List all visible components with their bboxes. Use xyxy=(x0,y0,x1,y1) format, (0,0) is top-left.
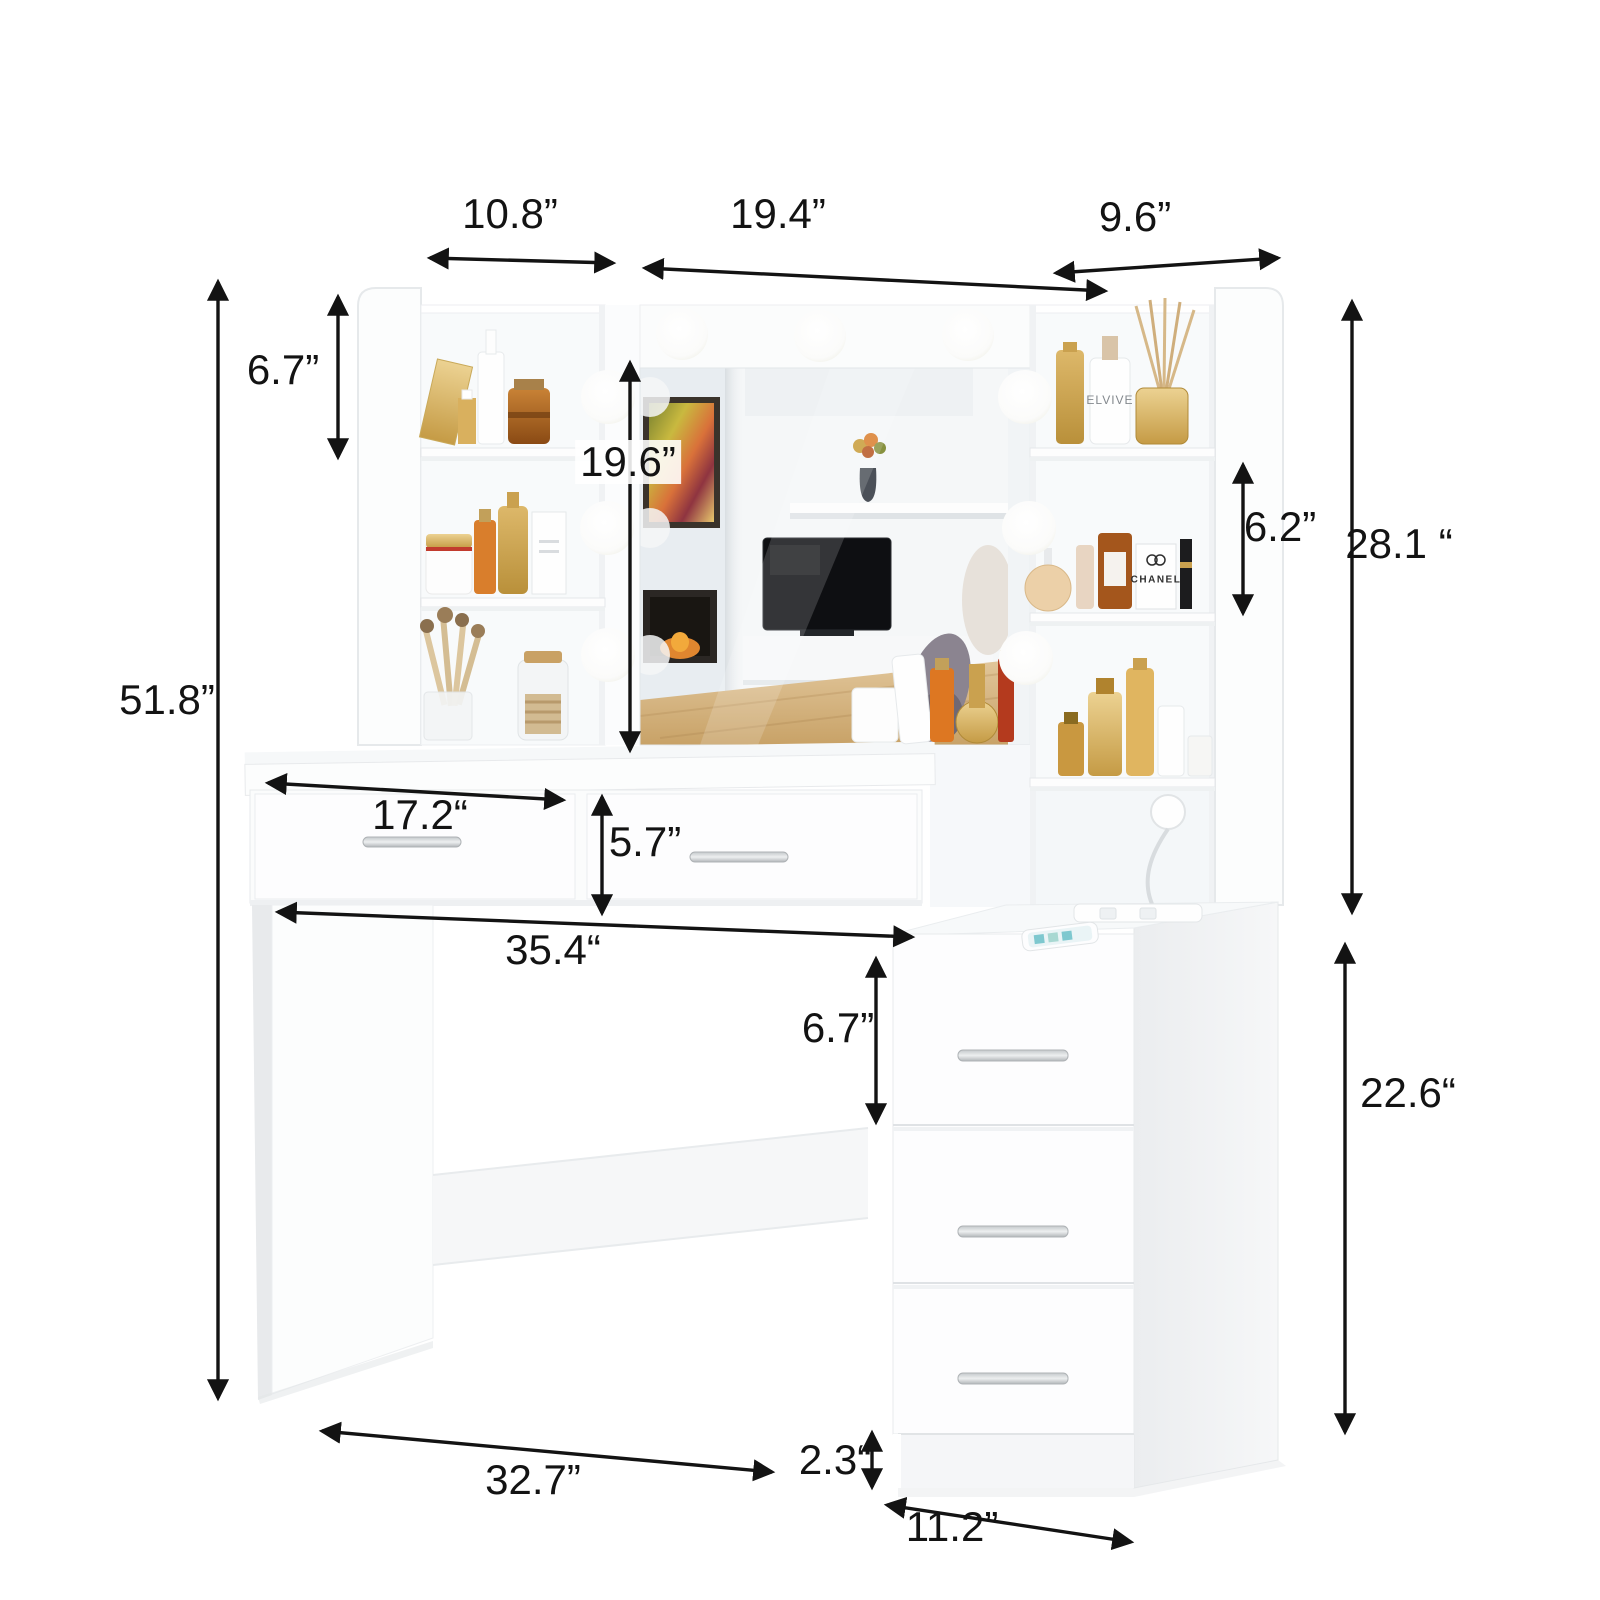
dim-label-cabinet-drawer-height: 6.7” xyxy=(802,1007,874,1049)
dim-label-mirror-width: 19.4” xyxy=(730,193,826,235)
dim-label-left-shelf-spacing: 6.7” xyxy=(247,349,319,391)
elvive-label: ELVIVE xyxy=(1086,393,1133,407)
drawer-handle xyxy=(690,852,788,862)
light-bulb xyxy=(581,370,635,424)
cabinet-side xyxy=(1134,902,1278,1488)
vanity-dimension-diagram: 10.8” 19.4” 9.6” 6.7” 19.6” 6.2” 28.1 “ … xyxy=(0,0,1600,1600)
dim-label-base-height: 2.3“ xyxy=(799,1439,871,1481)
cabinet-handle xyxy=(958,1373,1068,1384)
mascara xyxy=(1180,539,1192,609)
light-bulb xyxy=(656,308,708,360)
dim-label-hutch-right-width: 9.6” xyxy=(1099,196,1171,238)
right-niche xyxy=(1030,787,1215,907)
dim-label-hutch-left-width: 10.8” xyxy=(462,193,558,235)
hutch-left-panel xyxy=(358,288,421,745)
light-bulb xyxy=(998,370,1052,424)
chanel-label: CHANEL xyxy=(1131,575,1182,586)
diagram-artwork xyxy=(0,0,1600,1600)
light-bulb xyxy=(581,628,635,682)
arrow-mirror-width xyxy=(645,268,1105,291)
dim-label-right-shelf-spacing: 6.2” xyxy=(1244,506,1316,548)
dim-label-mirror-height: 19.6” xyxy=(575,440,681,484)
light-bulb xyxy=(794,310,846,362)
light-bulb xyxy=(580,501,634,555)
cabinet-handle xyxy=(958,1050,1068,1061)
left-leg xyxy=(252,905,433,1404)
right-tower-top-board xyxy=(1030,305,1215,313)
center-niche xyxy=(930,745,1030,907)
reflected-armchair xyxy=(962,545,1014,655)
dim-label-desk-drawer-width: 17.2“ xyxy=(372,794,468,836)
arrow-hutch-left-width xyxy=(430,258,613,263)
dim-label-cabinet-width: 11.2” xyxy=(906,1506,999,1548)
arrow-hutch-right-width xyxy=(1056,258,1278,273)
dim-label-cabinet-height: 22.6“ xyxy=(1360,1072,1456,1114)
dim-label-desktop-width: 35.4“ xyxy=(505,929,601,971)
drawer-handle xyxy=(363,837,461,847)
dim-label-hutch-height: 28.1 “ xyxy=(1345,523,1452,565)
light-bulb xyxy=(942,309,994,361)
left-tower-top-board xyxy=(421,305,605,313)
cabinet-handle xyxy=(958,1226,1068,1237)
cable-hole xyxy=(1151,795,1185,829)
support-beam xyxy=(433,1128,868,1265)
light-bulb xyxy=(1002,501,1056,555)
right-cabinet xyxy=(886,902,1286,1497)
hutch-right-panel xyxy=(1215,288,1283,905)
desk-drawers xyxy=(250,790,922,906)
cabinet-base xyxy=(898,1434,1134,1488)
light-bulb xyxy=(999,631,1053,685)
dim-label-overall-height: 51.8” xyxy=(119,679,215,721)
rope-jar xyxy=(518,651,568,740)
dim-label-leg-to-cabinet-width: 32.7” xyxy=(485,1459,581,1501)
dim-label-desk-drawer-height: 5.7” xyxy=(609,821,681,863)
cabinet-front xyxy=(893,934,1134,1434)
